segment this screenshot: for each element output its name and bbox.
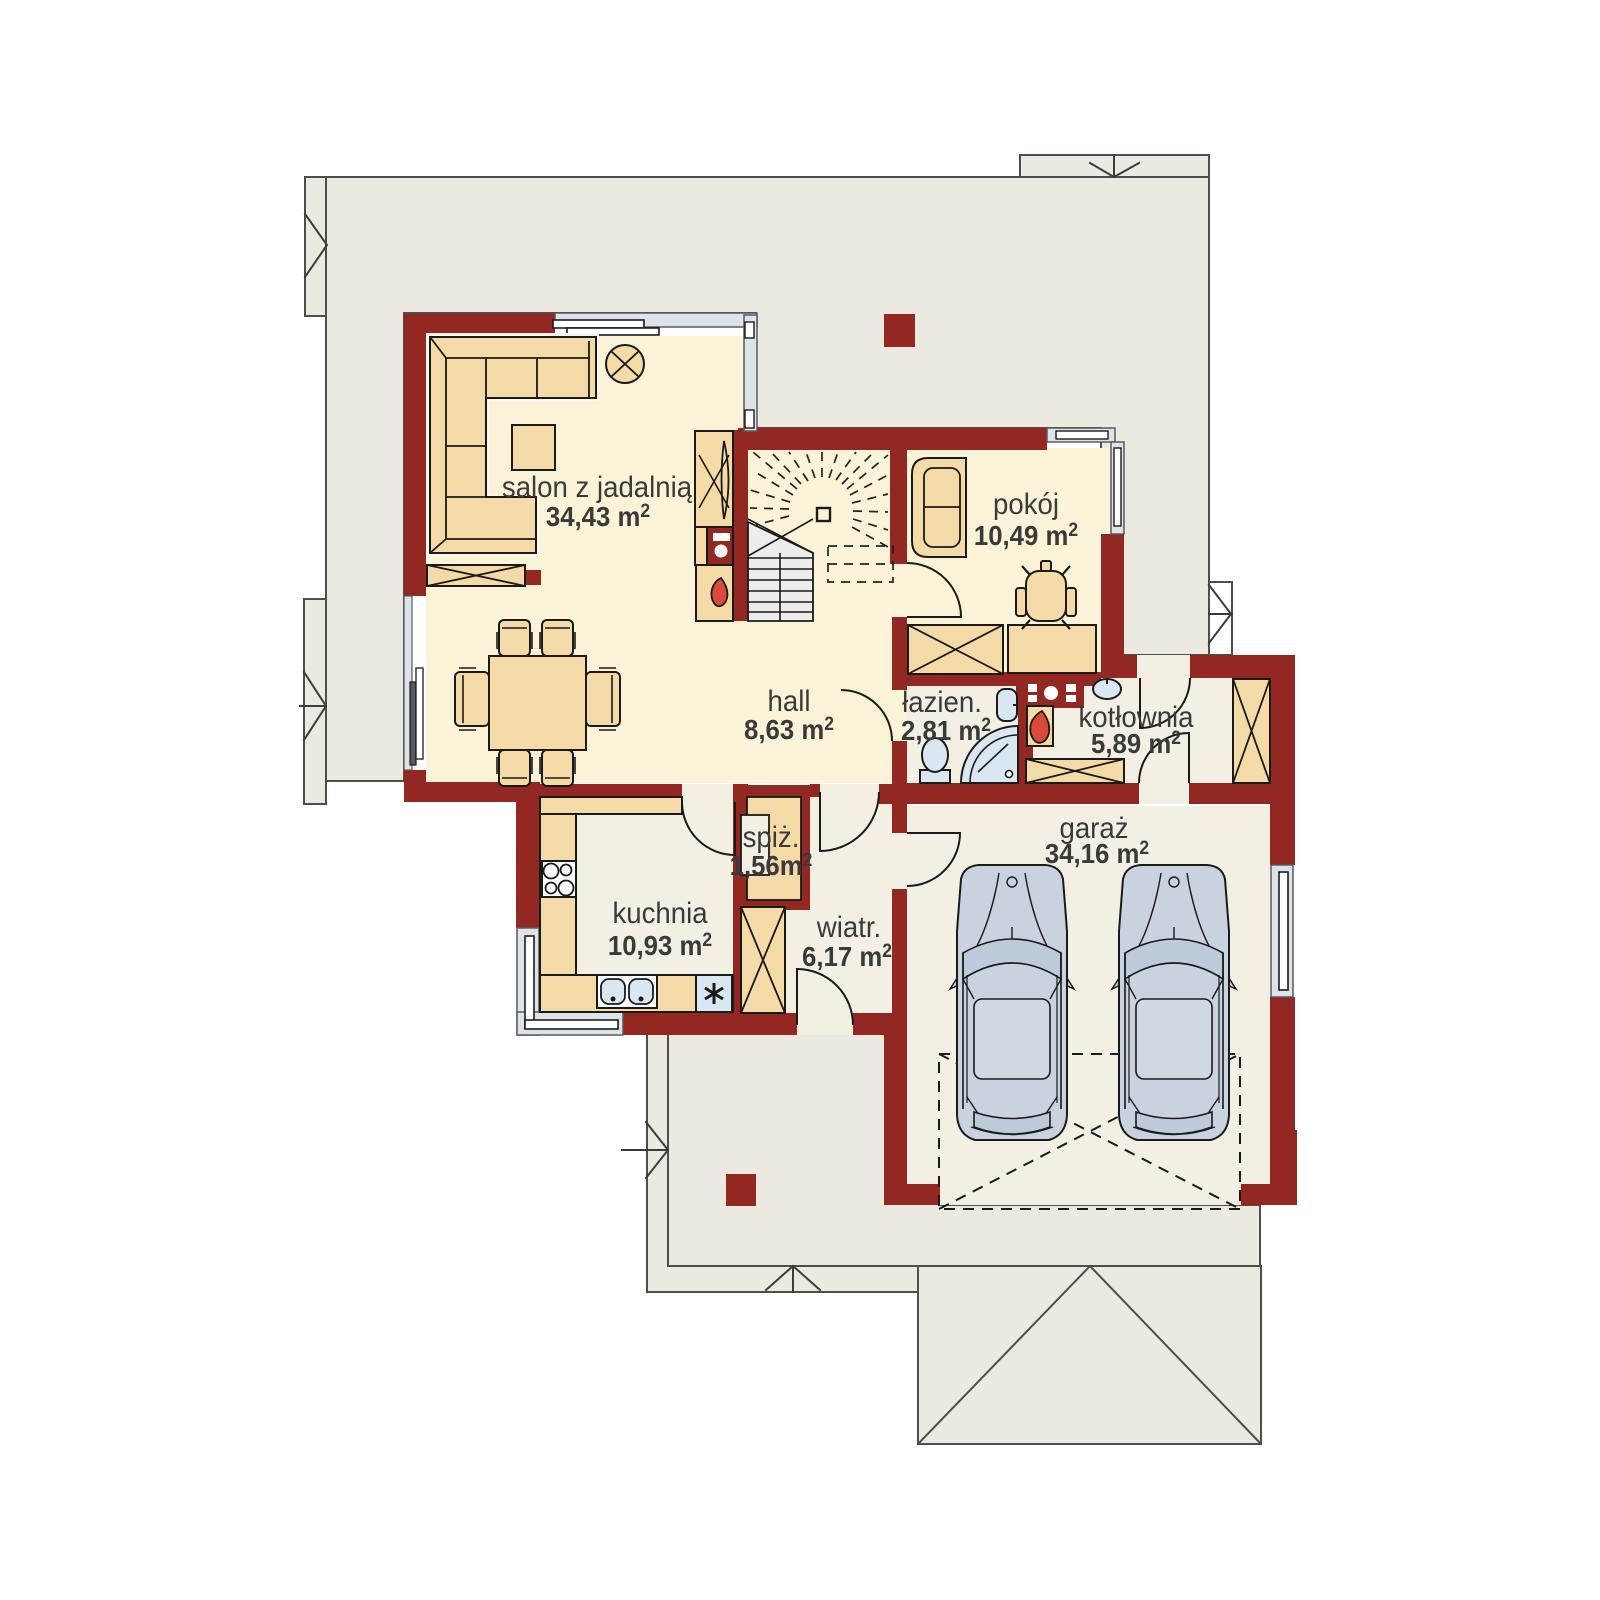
svg-text:5,89 m2: 5,89 m2 — [1091, 726, 1181, 759]
svg-text:1,56m2: 1,56m2 — [730, 848, 813, 881]
svg-text:pokój: pokój — [993, 488, 1059, 521]
svg-text:kuchnia: kuchnia — [612, 897, 708, 930]
svg-text:8,63 m2: 8,63 m2 — [744, 712, 834, 745]
svg-text:2,81 m2: 2,81 m2 — [901, 713, 991, 746]
svg-text:34,43 m2: 34,43 m2 — [546, 499, 650, 532]
svg-text:wiatr.: wiatr. — [816, 911, 881, 944]
svg-text:salon z jadalnią: salon z jadalnią — [502, 471, 693, 504]
svg-text:10,93 m2: 10,93 m2 — [608, 928, 712, 961]
svg-text:6,17 m2: 6,17 m2 — [802, 939, 892, 972]
svg-text:10,49 m2: 10,49 m2 — [974, 518, 1078, 551]
svg-text:34,16 m2: 34,16 m2 — [1045, 836, 1149, 869]
